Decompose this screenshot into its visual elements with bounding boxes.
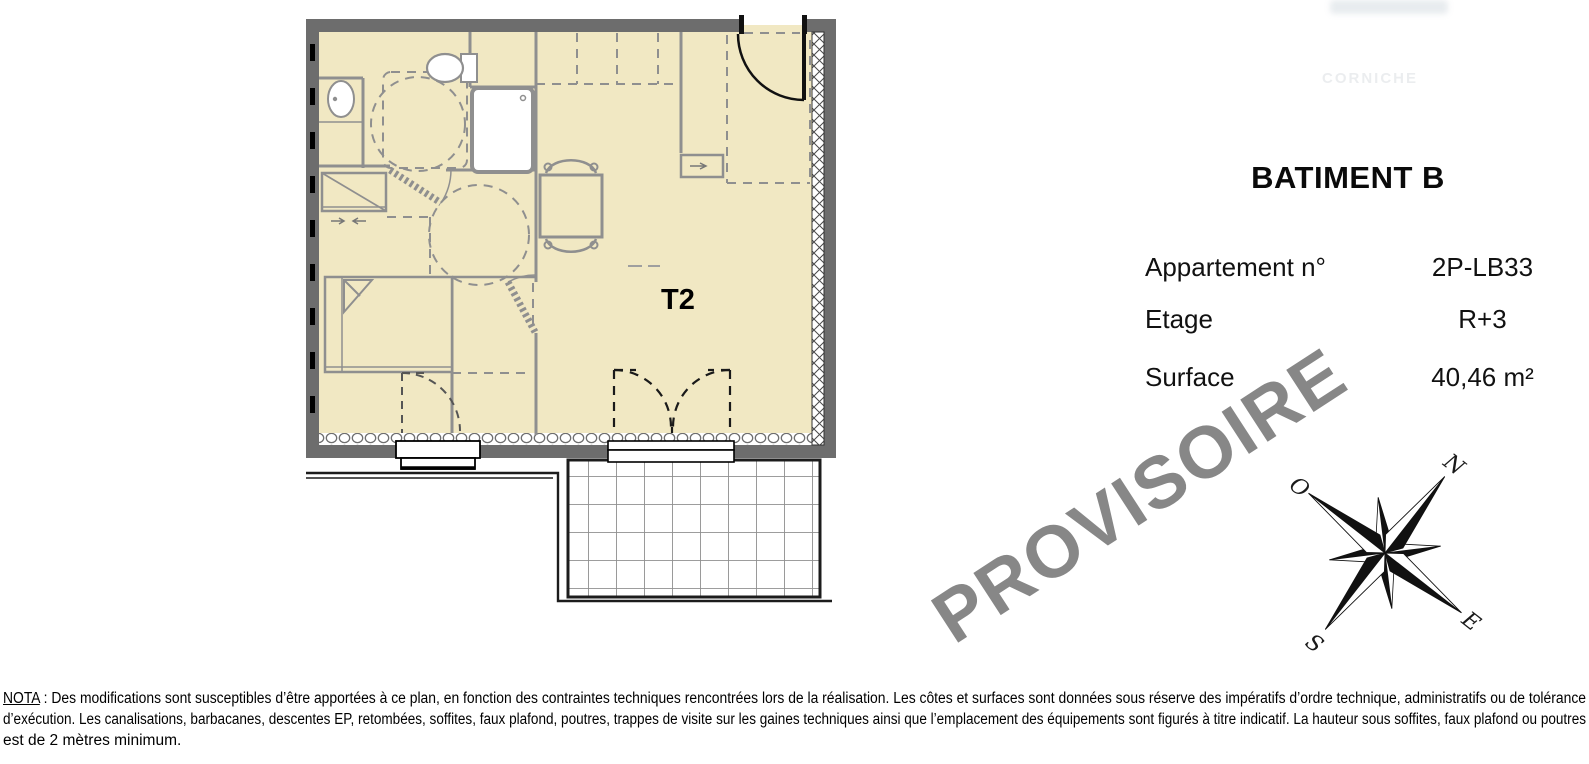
ghost-corniche-text: CORNICHE [1322, 70, 1418, 87]
dining-table [540, 160, 602, 252]
floor-value: R+3 [1405, 304, 1560, 335]
floor-plan-page: { "info_panel": { "title": "BATIMENT B",… [0, 0, 1589, 764]
apartment-number-value: 2P-LB33 [1405, 252, 1560, 283]
bathroom-sink [328, 81, 354, 117]
faint-artifact [1330, 0, 1448, 14]
bottom-wall-railing-band [319, 433, 812, 445]
entry-cabinet [681, 155, 723, 177]
info-row-apartment: Appartement n° 2P-LB33 [1145, 252, 1560, 282]
balcony [568, 460, 820, 597]
nota-disclaimer: NOTA : Des modifications sont susceptibl… [3, 688, 1586, 751]
compass-west-label: O [1284, 472, 1314, 503]
nota-line-3: est de 2 mètres minimum. [3, 730, 1586, 751]
nota-label: NOTA [3, 690, 40, 707]
compass-long-points [1249, 417, 1521, 689]
toilet [427, 54, 477, 82]
nota-line-3-text: est de 2 mètres minimum. [3, 732, 181, 749]
party-wall-hatch [812, 32, 824, 445]
shower [472, 88, 533, 172]
nota-line-1-text: : Des modifications sont susceptibles d’… [40, 690, 1586, 707]
floor-label: Etage [1145, 304, 1213, 334]
bed [325, 277, 452, 372]
compass-south-label: S [1300, 630, 1327, 659]
unit-type-label: T2 [661, 284, 695, 316]
building-title: BATIMENT B [1148, 160, 1548, 196]
nota-line-1: NOTA : Des modifications sont susceptibl… [3, 688, 1586, 709]
compass-north-label: N [1438, 449, 1470, 482]
surface-value: 40,46 m² [1405, 362, 1560, 393]
nota-line-2: d’exécution. Les canalisations, barbacan… [3, 709, 1586, 730]
surface-label: Surface [1145, 362, 1235, 392]
nota-line-2-text: d’exécution. Les canalisations, barbacan… [3, 709, 1586, 730]
apartment-number-label: Appartement n° [1145, 252, 1326, 282]
